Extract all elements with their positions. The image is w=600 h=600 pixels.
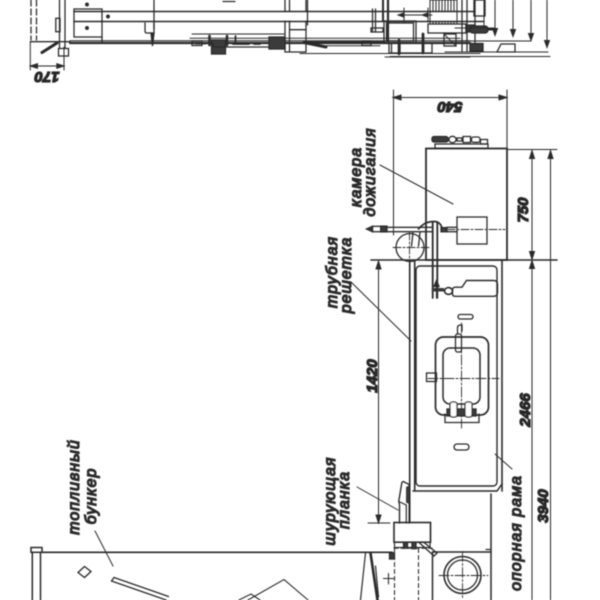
svg-text:3940: 3940 — [535, 489, 552, 523]
svg-text:170: 170 — [34, 68, 60, 85]
svg-text:540: 540 — [437, 98, 463, 115]
svg-text:планка: планка — [336, 471, 353, 529]
svg-text:топливный: топливный — [66, 439, 83, 535]
svg-text:2466: 2466 — [517, 393, 534, 428]
svg-text:решетка: решетка — [338, 237, 355, 315]
svg-text:750: 750 — [515, 197, 532, 223]
svg-text:1420: 1420 — [364, 359, 381, 393]
svg-text:бункер: бункер — [83, 468, 100, 525]
svg-text:дожигания: дожигания — [362, 127, 379, 216]
svg-text:опорная рама: опорная рама — [508, 475, 525, 591]
